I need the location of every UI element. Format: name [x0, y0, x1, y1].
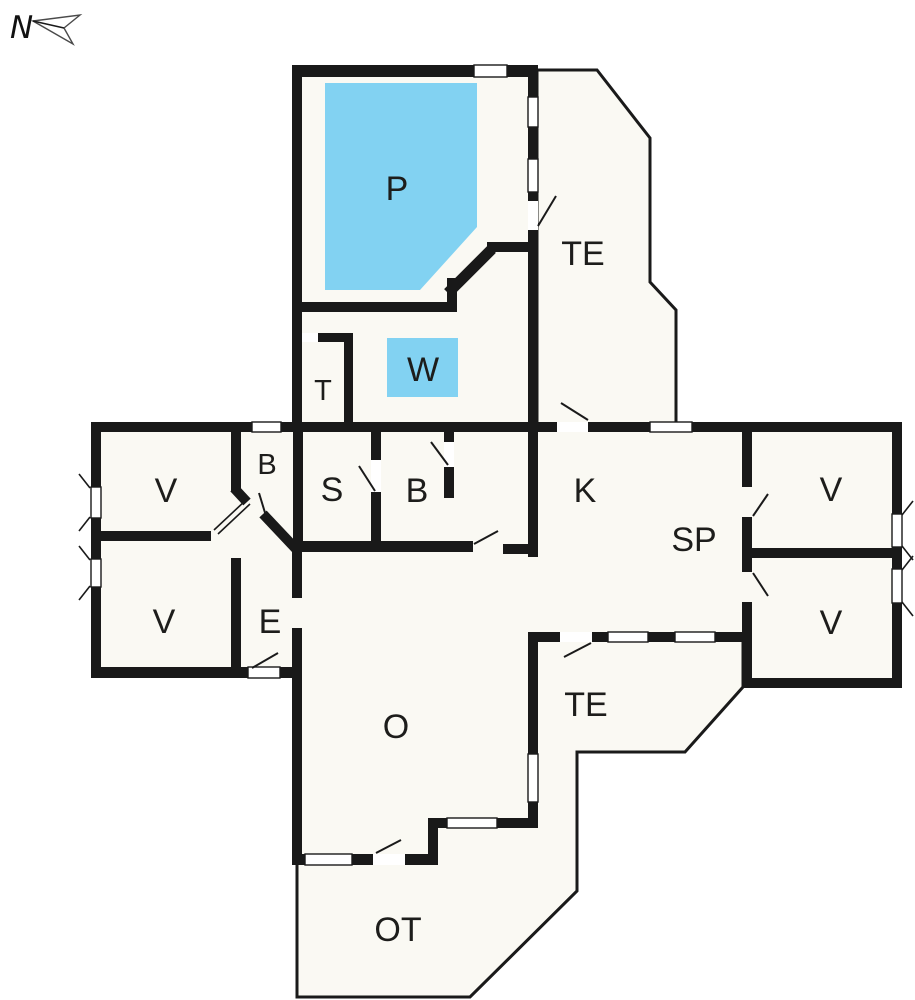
- door-opening: [560, 632, 592, 642]
- wall-segment: [293, 422, 303, 551]
- window: [91, 487, 101, 518]
- wall-segment: [742, 517, 752, 572]
- wall-segment: [487, 242, 538, 252]
- window: [474, 65, 507, 77]
- compass-north-label: N: [10, 10, 33, 46]
- wall-segment: [91, 422, 101, 678]
- floor-plan-svg: P TE W T B V S B K SP V V E V O TE OT N: [0, 0, 915, 1000]
- window-splay: [79, 517, 90, 531]
- door-opening: [373, 854, 405, 865]
- room-label-open-terrace: OT: [374, 911, 421, 949]
- room-label-bedroom-bottom-left: V: [153, 603, 176, 641]
- wall-segment: [444, 422, 454, 442]
- window-splay: [79, 586, 90, 600]
- wall-segment: [292, 302, 457, 312]
- wall-segment: [444, 467, 454, 498]
- room-label-terrace-lower: TE: [564, 686, 607, 724]
- wall-segment: [742, 678, 902, 688]
- window-splay: [902, 556, 913, 570]
- wall-segment: [292, 65, 302, 432]
- window: [447, 818, 497, 828]
- wall-segment: [503, 544, 538, 554]
- compass-arrow-icon: [33, 15, 80, 44]
- room-label-entrance: E: [259, 603, 282, 641]
- room-label-bedroom-bottom-right: V: [820, 604, 843, 642]
- room-label-sauna: S: [321, 471, 344, 509]
- window: [650, 422, 692, 432]
- room-label-bedroom-top-right: V: [820, 471, 843, 509]
- room-label-kitchen: K: [574, 472, 597, 510]
- wall-segment: [231, 558, 241, 669]
- room-label-living-room: O: [383, 708, 409, 746]
- wall-segment: [892, 422, 902, 688]
- window: [91, 559, 101, 587]
- room-label-bathroom-left: B: [257, 449, 276, 481]
- terrace-upper-area: [537, 70, 676, 427]
- window-splay: [902, 501, 913, 515]
- wall-segment: [344, 333, 353, 432]
- floor-plan-page: P TE W T B V S B K SP V V E V O TE OT N: [0, 0, 915, 1000]
- window: [528, 754, 538, 802]
- wall-segment: [292, 333, 353, 342]
- wall-segment: [91, 422, 902, 432]
- wall-segment: [231, 422, 241, 492]
- window: [528, 159, 538, 192]
- window: [892, 514, 902, 547]
- window: [675, 632, 715, 642]
- window: [252, 422, 281, 432]
- room-label-toilet: T: [314, 375, 332, 407]
- wall-segment: [293, 541, 473, 552]
- room-label-pool: P: [386, 170, 409, 208]
- window: [892, 569, 902, 603]
- wall-segment: [742, 422, 752, 487]
- room-label-whirlpool: W: [407, 351, 439, 389]
- room-label-bathroom-center: B: [406, 472, 429, 510]
- floor-kitchen-dining: [528, 422, 752, 642]
- window-splay: [902, 602, 913, 616]
- wall-segment: [752, 548, 892, 558]
- wall-segment: [292, 628, 302, 865]
- window-splay: [79, 546, 90, 560]
- window: [305, 854, 352, 865]
- door-opening: [557, 422, 588, 432]
- window: [528, 97, 538, 127]
- window: [608, 632, 648, 642]
- wall-segment: [292, 549, 302, 598]
- room-label-dining: SP: [671, 521, 716, 559]
- window-splay: [79, 474, 90, 488]
- door-opening: [528, 201, 538, 230]
- wall-segment: [101, 531, 211, 541]
- room-label-bedroom-top-left: V: [155, 472, 178, 510]
- wall-segment: [528, 65, 538, 557]
- wall-segment: [742, 602, 752, 688]
- wall-segment: [371, 422, 381, 460]
- door-opening: [302, 333, 318, 342]
- room-label-terrace-upper: TE: [561, 235, 604, 273]
